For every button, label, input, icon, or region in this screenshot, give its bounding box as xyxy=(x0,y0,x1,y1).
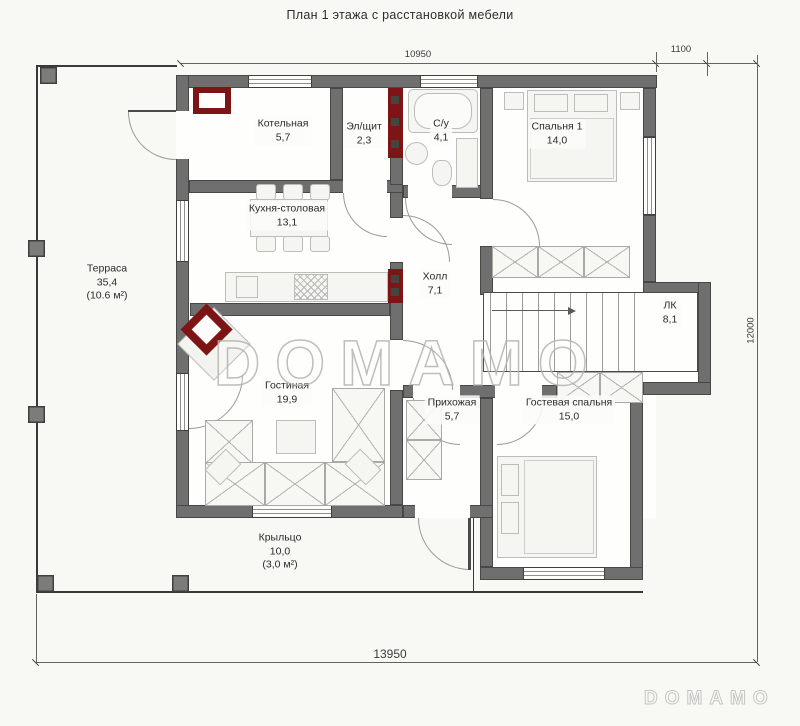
window-guest-south xyxy=(523,567,605,580)
room-label-bedroom1: Спальня 1 14,0 xyxy=(529,119,586,148)
floor-plan-canvas: План 1 этажа с расстановкой мебели xyxy=(0,0,800,726)
door-opening-boiler-terrace xyxy=(176,111,189,159)
room-area: 10,0 xyxy=(259,545,302,559)
chair xyxy=(283,184,303,200)
room-area: 5,7 xyxy=(258,131,309,145)
door-opening-porch xyxy=(415,505,470,518)
room-label-boiler: Котельная 5,7 xyxy=(255,116,312,145)
room-area: 35,4 xyxy=(86,276,127,290)
dim-line-right xyxy=(757,55,758,662)
room-name: Крыльцо xyxy=(259,532,302,546)
terrace-post xyxy=(37,575,54,592)
door-swing-boiler-terrace xyxy=(128,112,176,160)
dim-line-bottom xyxy=(36,662,757,663)
room-name: Терраса xyxy=(86,263,127,277)
nightstand xyxy=(504,92,524,110)
room-label-terrace: Терраса 35,4 (10.6 м²) xyxy=(83,262,130,305)
boiler-unit xyxy=(193,87,231,114)
room-label-hall: Холл 7,1 xyxy=(420,269,451,298)
dim-ext-line xyxy=(36,594,37,662)
dim-top-value: 10950 xyxy=(405,49,431,60)
room-name: Котельная xyxy=(258,117,309,131)
dim-bottom-value: 13950 xyxy=(373,647,406,661)
room-area: 8,1 xyxy=(663,313,678,327)
door-leaf-boiler-terrace xyxy=(128,110,176,112)
window-kitchen xyxy=(176,200,189,262)
dim-top-right-value: 1100 xyxy=(671,44,691,55)
room-area: 2,3 xyxy=(346,134,382,148)
window-bedroom1 xyxy=(643,137,656,215)
wall-central-c xyxy=(390,390,403,505)
washbasin xyxy=(405,142,428,165)
room-area: 13,1 xyxy=(249,216,325,230)
chimney-shaft-bath xyxy=(388,88,403,158)
coffee-table xyxy=(276,420,316,454)
pillow xyxy=(501,464,519,496)
shaft-flue xyxy=(391,96,399,104)
window-bath xyxy=(420,75,478,88)
terrace-left-line xyxy=(36,65,38,592)
chair xyxy=(283,236,303,252)
wall-bumpout-bottom xyxy=(643,382,711,395)
door-leaf-porch xyxy=(468,518,471,570)
room-area: 5,7 xyxy=(428,410,477,424)
dim-right-value: 12000 xyxy=(746,317,757,343)
wall-central-a xyxy=(390,192,403,218)
wall-right-upper xyxy=(643,88,656,137)
shaft-flue xyxy=(391,118,399,126)
terrace-post xyxy=(28,240,45,257)
dim-line-top xyxy=(180,63,757,64)
room-name: Эл/щит xyxy=(346,120,382,134)
terrace-bottom-line xyxy=(36,591,643,593)
room-label-elshit: Эл/щит 2,3 xyxy=(343,119,385,148)
nightstand xyxy=(620,92,640,110)
bath-cabinet xyxy=(456,138,478,188)
door-opening-elshit xyxy=(343,180,387,193)
window-boiler xyxy=(248,75,312,88)
wall-guest-right xyxy=(630,395,643,580)
dim-ext-line xyxy=(656,52,657,72)
room-label-porch: Крыльцо 10,0 (3,0 м²) xyxy=(256,531,305,574)
terrace-post xyxy=(28,406,45,423)
chimney-shaft-hall xyxy=(388,269,403,303)
terrace-post xyxy=(40,67,57,84)
door-opening-bath xyxy=(408,185,452,198)
blanket xyxy=(524,460,594,554)
pillow xyxy=(574,94,608,112)
kitchen-sink xyxy=(236,276,258,298)
dim-ext-line xyxy=(707,52,708,76)
room-area: 15,0 xyxy=(526,410,612,424)
shaft-flue xyxy=(391,140,399,148)
pillow xyxy=(534,94,568,112)
stair-direction-line xyxy=(492,310,570,311)
room-name: Спальня 1 xyxy=(532,120,583,134)
room-area: 14,0 xyxy=(532,134,583,148)
stove xyxy=(294,274,328,300)
room-label-kitchen: Кухня-столовая 13,1 xyxy=(246,201,328,230)
wardrobe-hallway xyxy=(406,440,442,480)
window-living-south xyxy=(252,505,332,518)
pillow xyxy=(501,502,519,534)
room-name: С/у xyxy=(433,117,449,131)
room-name: Кухня-столовая xyxy=(249,202,325,216)
chair xyxy=(310,184,330,200)
chair xyxy=(256,184,276,200)
room-name: ЛК xyxy=(663,299,678,313)
wall-right-mid xyxy=(643,215,656,282)
sofa-bottom-module xyxy=(265,462,325,506)
room-name: Холл xyxy=(423,270,448,284)
room-note: (10.6 м²) xyxy=(86,290,127,304)
wall-bumpout-right xyxy=(698,282,711,395)
room-area: 7,1 xyxy=(423,284,448,298)
chair xyxy=(310,236,330,252)
room-label-bath: С/у 4,1 xyxy=(430,116,452,145)
door-swing-porch xyxy=(418,518,470,570)
page-title: План 1 этажа с расстановкой мебели xyxy=(286,8,513,22)
watermark-corner: DOMAMO xyxy=(644,688,775,710)
stair-direction-arrow xyxy=(568,307,576,315)
wall-guest-left xyxy=(480,398,493,567)
chair xyxy=(256,236,276,252)
wardrobe-bedroom1 xyxy=(584,246,630,278)
wardrobe-bedroom1 xyxy=(538,246,584,278)
room-label-stairs: ЛК 8,1 xyxy=(660,298,681,327)
terrace-top-line xyxy=(36,65,177,67)
wall-bath-bedroom1 xyxy=(480,88,493,199)
wall-boiler-elshit xyxy=(330,88,343,180)
toilet xyxy=(432,160,452,186)
room-note: (3,0 м²) xyxy=(259,559,302,573)
terrace-post xyxy=(172,575,189,592)
shaft-flue xyxy=(391,288,399,296)
window-door-living-terrace xyxy=(176,373,189,431)
porch-right-line xyxy=(473,518,474,591)
room-area: 4,1 xyxy=(433,131,449,145)
shaft-flue xyxy=(391,275,399,283)
wardrobe-bedroom1 xyxy=(492,246,538,278)
watermark-center: DOMAMO xyxy=(214,326,603,400)
